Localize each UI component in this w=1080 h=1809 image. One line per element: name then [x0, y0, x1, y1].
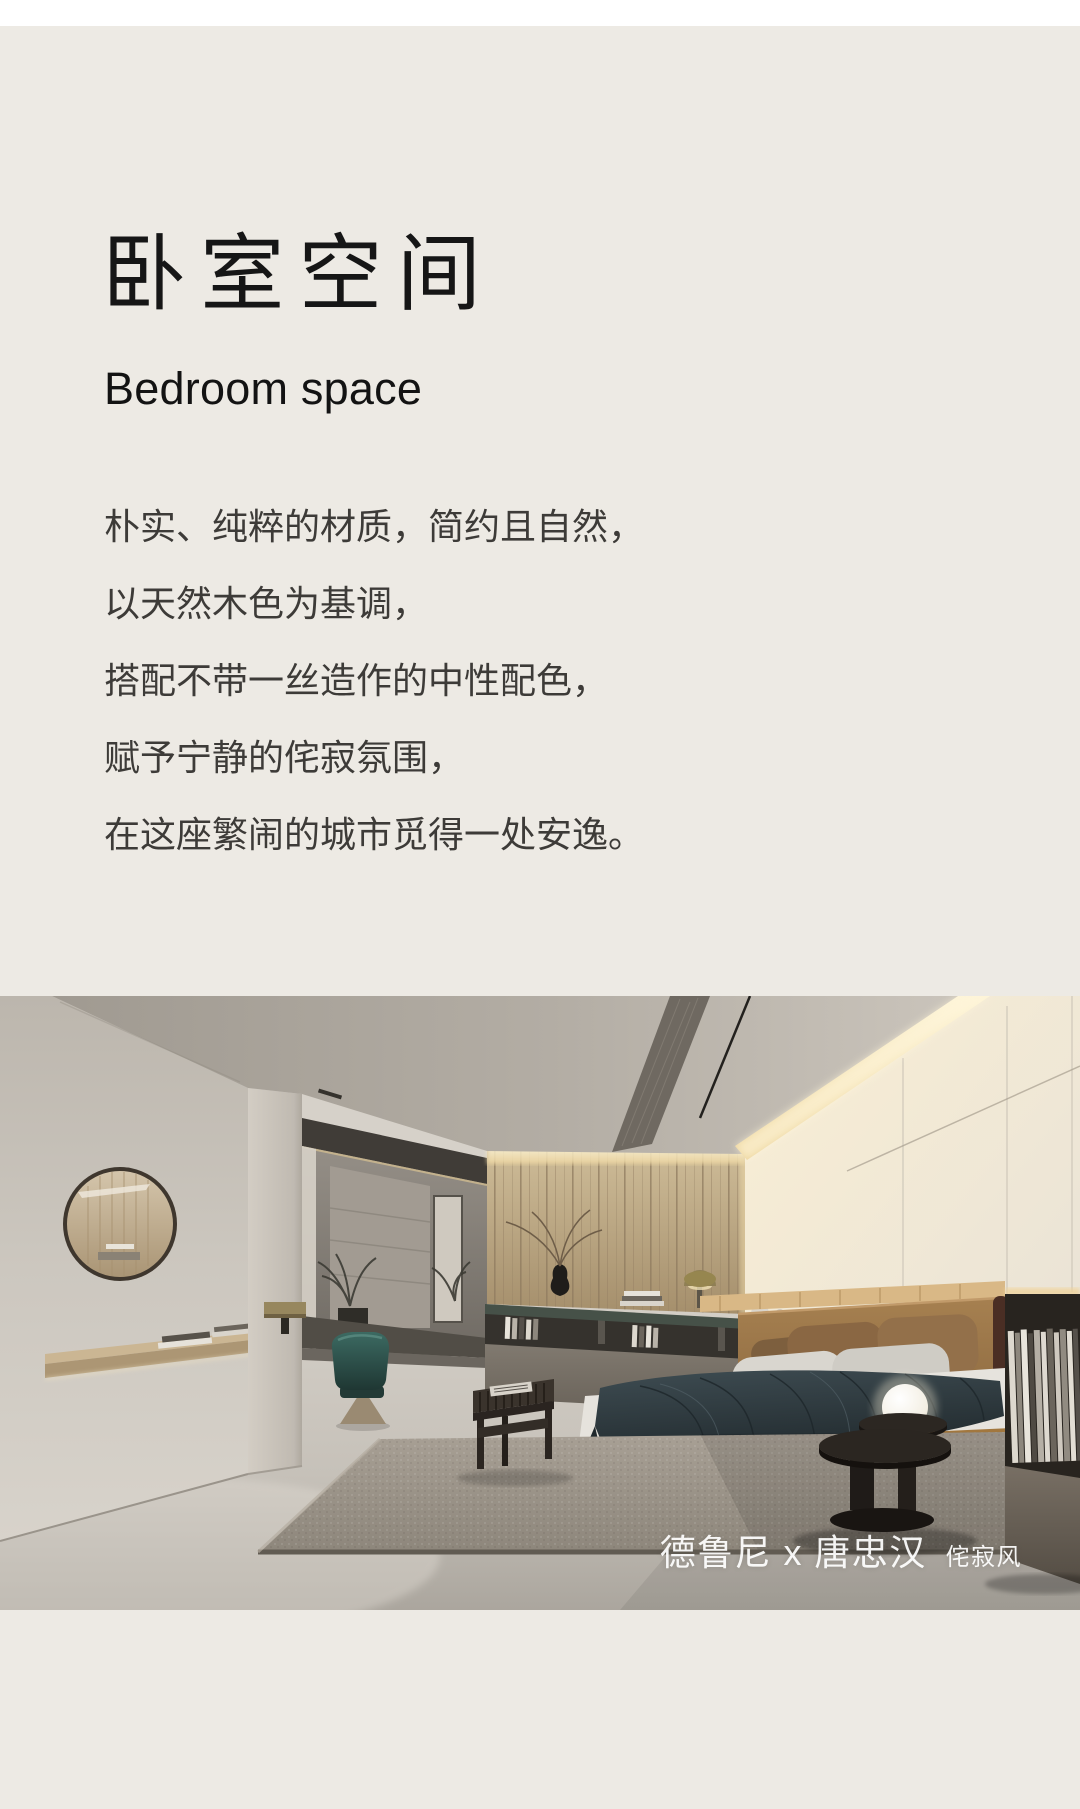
description-line: 在这座繁闹的城市觅得一处安逸。 — [104, 796, 924, 873]
article-card: 卧室空间 Bedroom space 朴实、纯粹的材质，简约且自然， 以天然木色… — [0, 26, 1080, 1809]
photo-watermark: 德鲁尼 x 唐忠汉 侘寂风 — [660, 1524, 1022, 1576]
description-line: 赋予宁静的侘寂氛围， — [104, 719, 924, 796]
round-mirror — [63, 1167, 177, 1281]
description-paragraph: 朴实、纯粹的材质，简约且自然， 以天然木色为基调， 搭配不带一丝造作的中性配色，… — [104, 488, 924, 873]
description-line: 以天然木色为基调， — [104, 565, 924, 642]
description-line: 朴实、纯粹的材质，简约且自然， — [104, 488, 924, 565]
page-title-cn: 卧室空间 — [102, 226, 495, 323]
description-line: 搭配不带一丝造作的中性配色， — [104, 642, 924, 719]
page-title-en: Bedroom space — [104, 362, 422, 416]
watermark-brand: 德鲁尼 x 唐忠汉 — [660, 1524, 927, 1576]
bedroom-scene — [0, 996, 1080, 1610]
pillar — [248, 1088, 302, 1474]
watermark-style-tag: 侘寂风 — [946, 1537, 1022, 1572]
bedroom-photo: 德鲁尼 x 唐忠汉 侘寂风 — [0, 996, 1080, 1610]
